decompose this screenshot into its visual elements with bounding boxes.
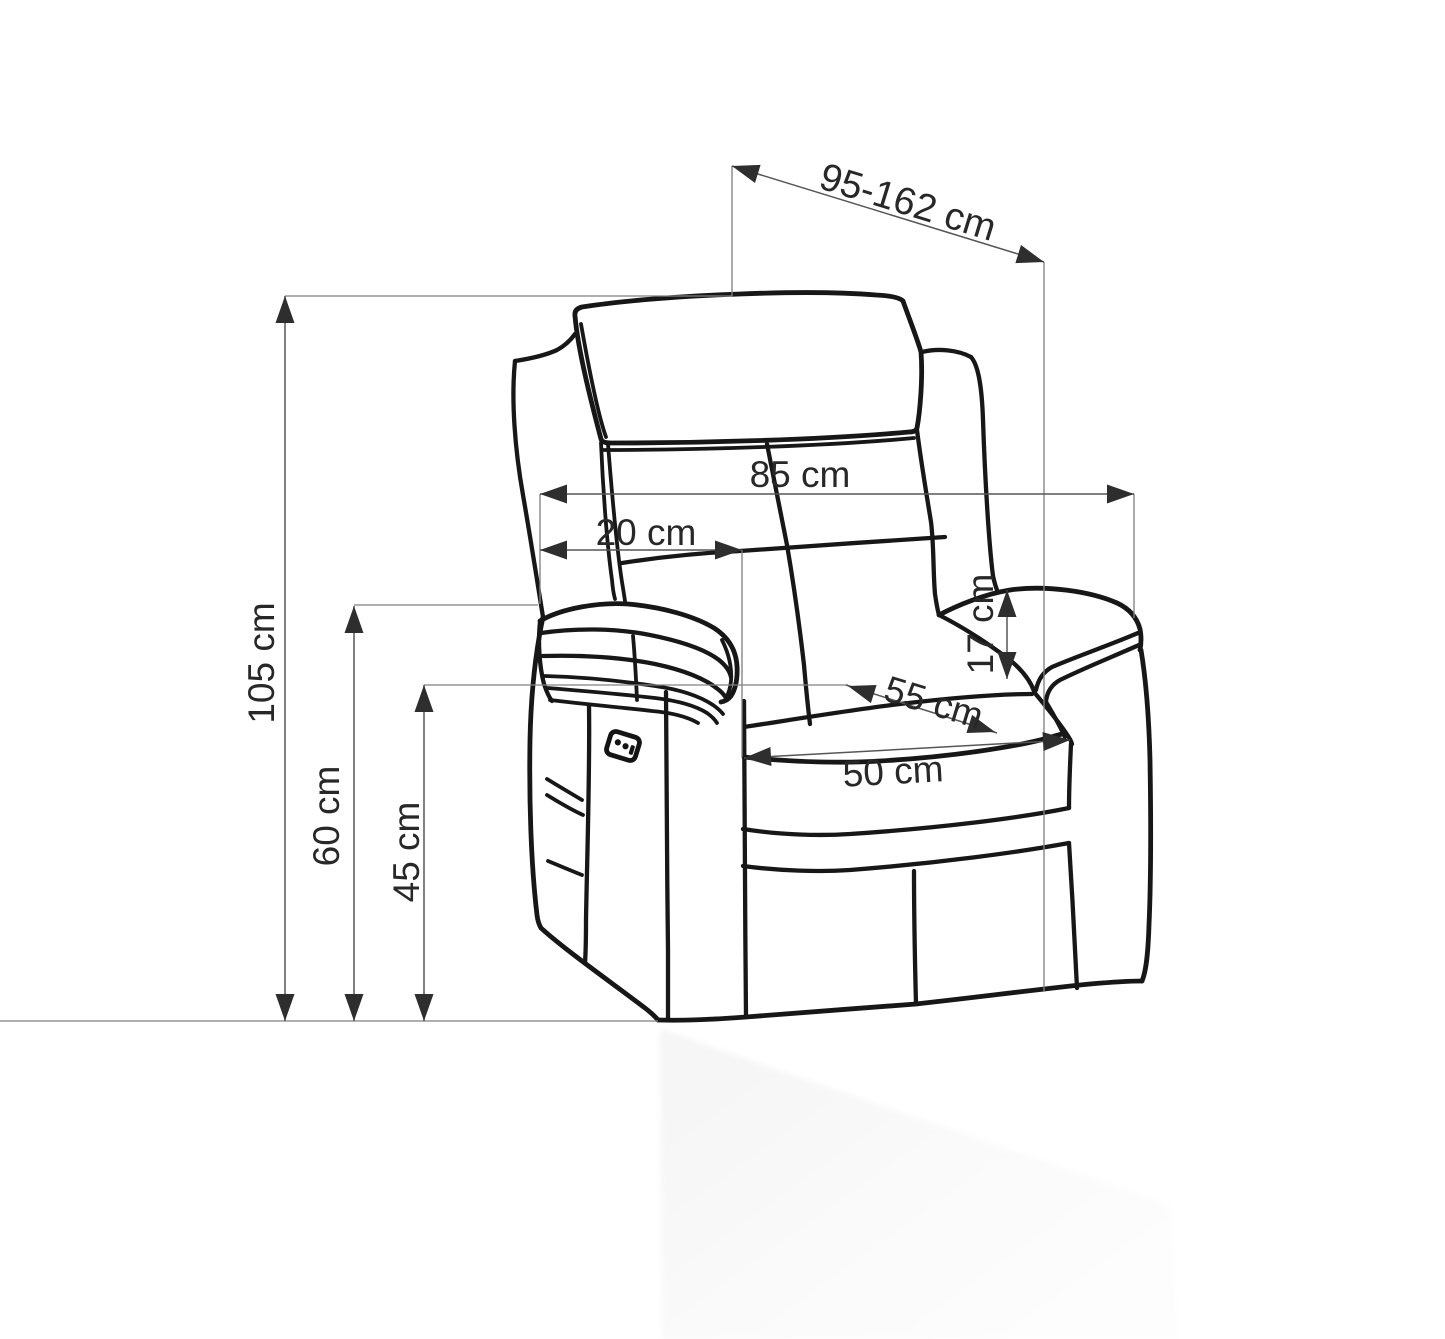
svg-text:60 cm: 60 cm	[306, 766, 347, 867]
svg-text:95-162 cm: 95-162 cm	[815, 155, 1002, 250]
svg-text:85 cm: 85 cm	[750, 454, 851, 495]
svg-text:105 cm: 105 cm	[241, 602, 282, 723]
svg-text:45 cm: 45 cm	[386, 802, 427, 903]
svg-text:55 cm: 55 cm	[880, 668, 988, 737]
svg-text:17 cm: 17 cm	[960, 574, 1001, 675]
svg-text:20 cm: 20 cm	[596, 512, 697, 553]
svg-text:50 cm: 50 cm	[842, 748, 945, 795]
